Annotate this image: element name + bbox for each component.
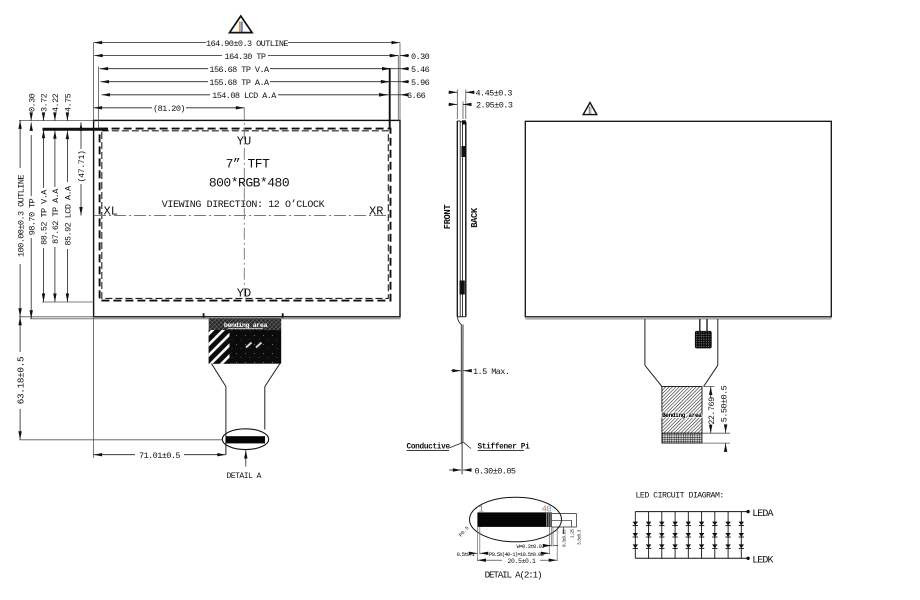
svg-text:(47.71): (47.71) (77, 151, 87, 183)
svg-text:800*RGB*480: 800*RGB*480 (209, 176, 289, 191)
svg-text:156.68 TP V.A: 156.68 TP V.A (209, 65, 270, 75)
svg-text:4.45±0.3: 4.45±0.3 (476, 89, 513, 99)
svg-text:4.75: 4.75 (64, 93, 74, 112)
svg-text:20.5±0.1: 20.5±0.1 (508, 558, 536, 565)
svg-text:XR: XR (369, 205, 383, 219)
svg-text:P0.5X(40-1)=19.5±0.05: P0.5X(40-1)=19.5±0.05 (489, 551, 544, 558)
svg-text:DETAIL A: DETAIL A (227, 472, 262, 481)
svg-text:LED CIRCUIT DIAGRAM:: LED CIRCUIT DIAGRAM: (636, 492, 724, 501)
svg-text:1.25: 1.25 (570, 529, 575, 538)
svg-text:4.22: 4.22 (51, 93, 61, 112)
svg-text:BACK: BACK (470, 207, 480, 228)
svg-text:5.46: 5.46 (411, 65, 430, 75)
svg-text:YU: YU (237, 135, 251, 149)
svg-text:7” TFT: 7” TFT (226, 157, 271, 172)
svg-text:VIEWING DIRECTION: 12 O’CLOCK: VIEWING DIRECTION: 12 O’CLOCK (162, 199, 325, 211)
svg-text:P0.5: P0.5 (458, 525, 470, 538)
svg-text:22.769: 22.769 (707, 397, 717, 425)
svg-text:5.96: 5.96 (411, 78, 430, 88)
svg-text:100.00±0.3 OUTLINE: 100.00±0.3 OUTLINE (16, 175, 26, 257)
svg-text:155.68 TP A.A: 155.68 TP A.A (209, 78, 270, 88)
svg-text:6.66: 6.66 (407, 91, 426, 101)
svg-text:FRONT: FRONT (443, 204, 453, 230)
svg-text:0.3±0.03: 0.3±0.03 (563, 529, 568, 547)
svg-text:3.72: 3.72 (40, 93, 50, 112)
svg-text:164.90±0.3 OUTLINE: 164.90±0.3 OUTLINE (206, 39, 288, 49)
svg-text:LEDA: LEDA (752, 509, 773, 520)
svg-text:85.92 LCD A.A: 85.92 LCD A.A (64, 185, 74, 246)
svg-text:YD: YD (237, 287, 251, 301)
svg-text:W=0.3±0.03: W=0.3±0.03 (517, 543, 545, 550)
svg-text:DETAIL A(2:1): DETAIL A(2:1) (485, 570, 542, 581)
svg-text:0.30: 0.30 (411, 52, 430, 62)
svg-text:63.18±0.5: 63.18±0.5 (15, 357, 26, 405)
svg-text:XL: XL (104, 205, 118, 219)
svg-text:3.5±0.3: 3.5±0.3 (577, 529, 582, 545)
svg-text:154.08 LCD A.A: 154.08 LCD A.A (212, 91, 277, 101)
svg-text:164.30 TP: 164.30 TP (225, 52, 266, 62)
svg-text:Bending area: Bending area (662, 412, 702, 419)
svg-text:87.62 TP A.A: 87.62 TP A.A (51, 188, 61, 244)
svg-text:0.5±0.1: 0.5±0.1 (457, 551, 476, 558)
svg-text:0.30: 0.30 (27, 93, 37, 112)
svg-text:71.01±0.5: 71.01±0.5 (139, 451, 180, 461)
svg-text:1.5 Max.: 1.5 Max. (473, 367, 509, 377)
svg-text:LEDK: LEDK (752, 556, 773, 567)
svg-text:5.50±0.5: 5.50±0.5 (720, 385, 730, 422)
svg-text:2.95±0.3: 2.95±0.3 (476, 101, 513, 111)
svg-text:0.30±0.05: 0.30±0.05 (475, 466, 516, 476)
svg-text:(81.20): (81.20) (153, 104, 185, 114)
svg-text:1: 1 (479, 504, 484, 514)
svg-text:98.70 TP: 98.70 TP (27, 198, 37, 235)
svg-text:bending area: bending area (224, 322, 268, 329)
svg-text:88.52 TP V.A: 88.52 TP V.A (40, 189, 50, 245)
svg-text:40: 40 (542, 504, 552, 514)
